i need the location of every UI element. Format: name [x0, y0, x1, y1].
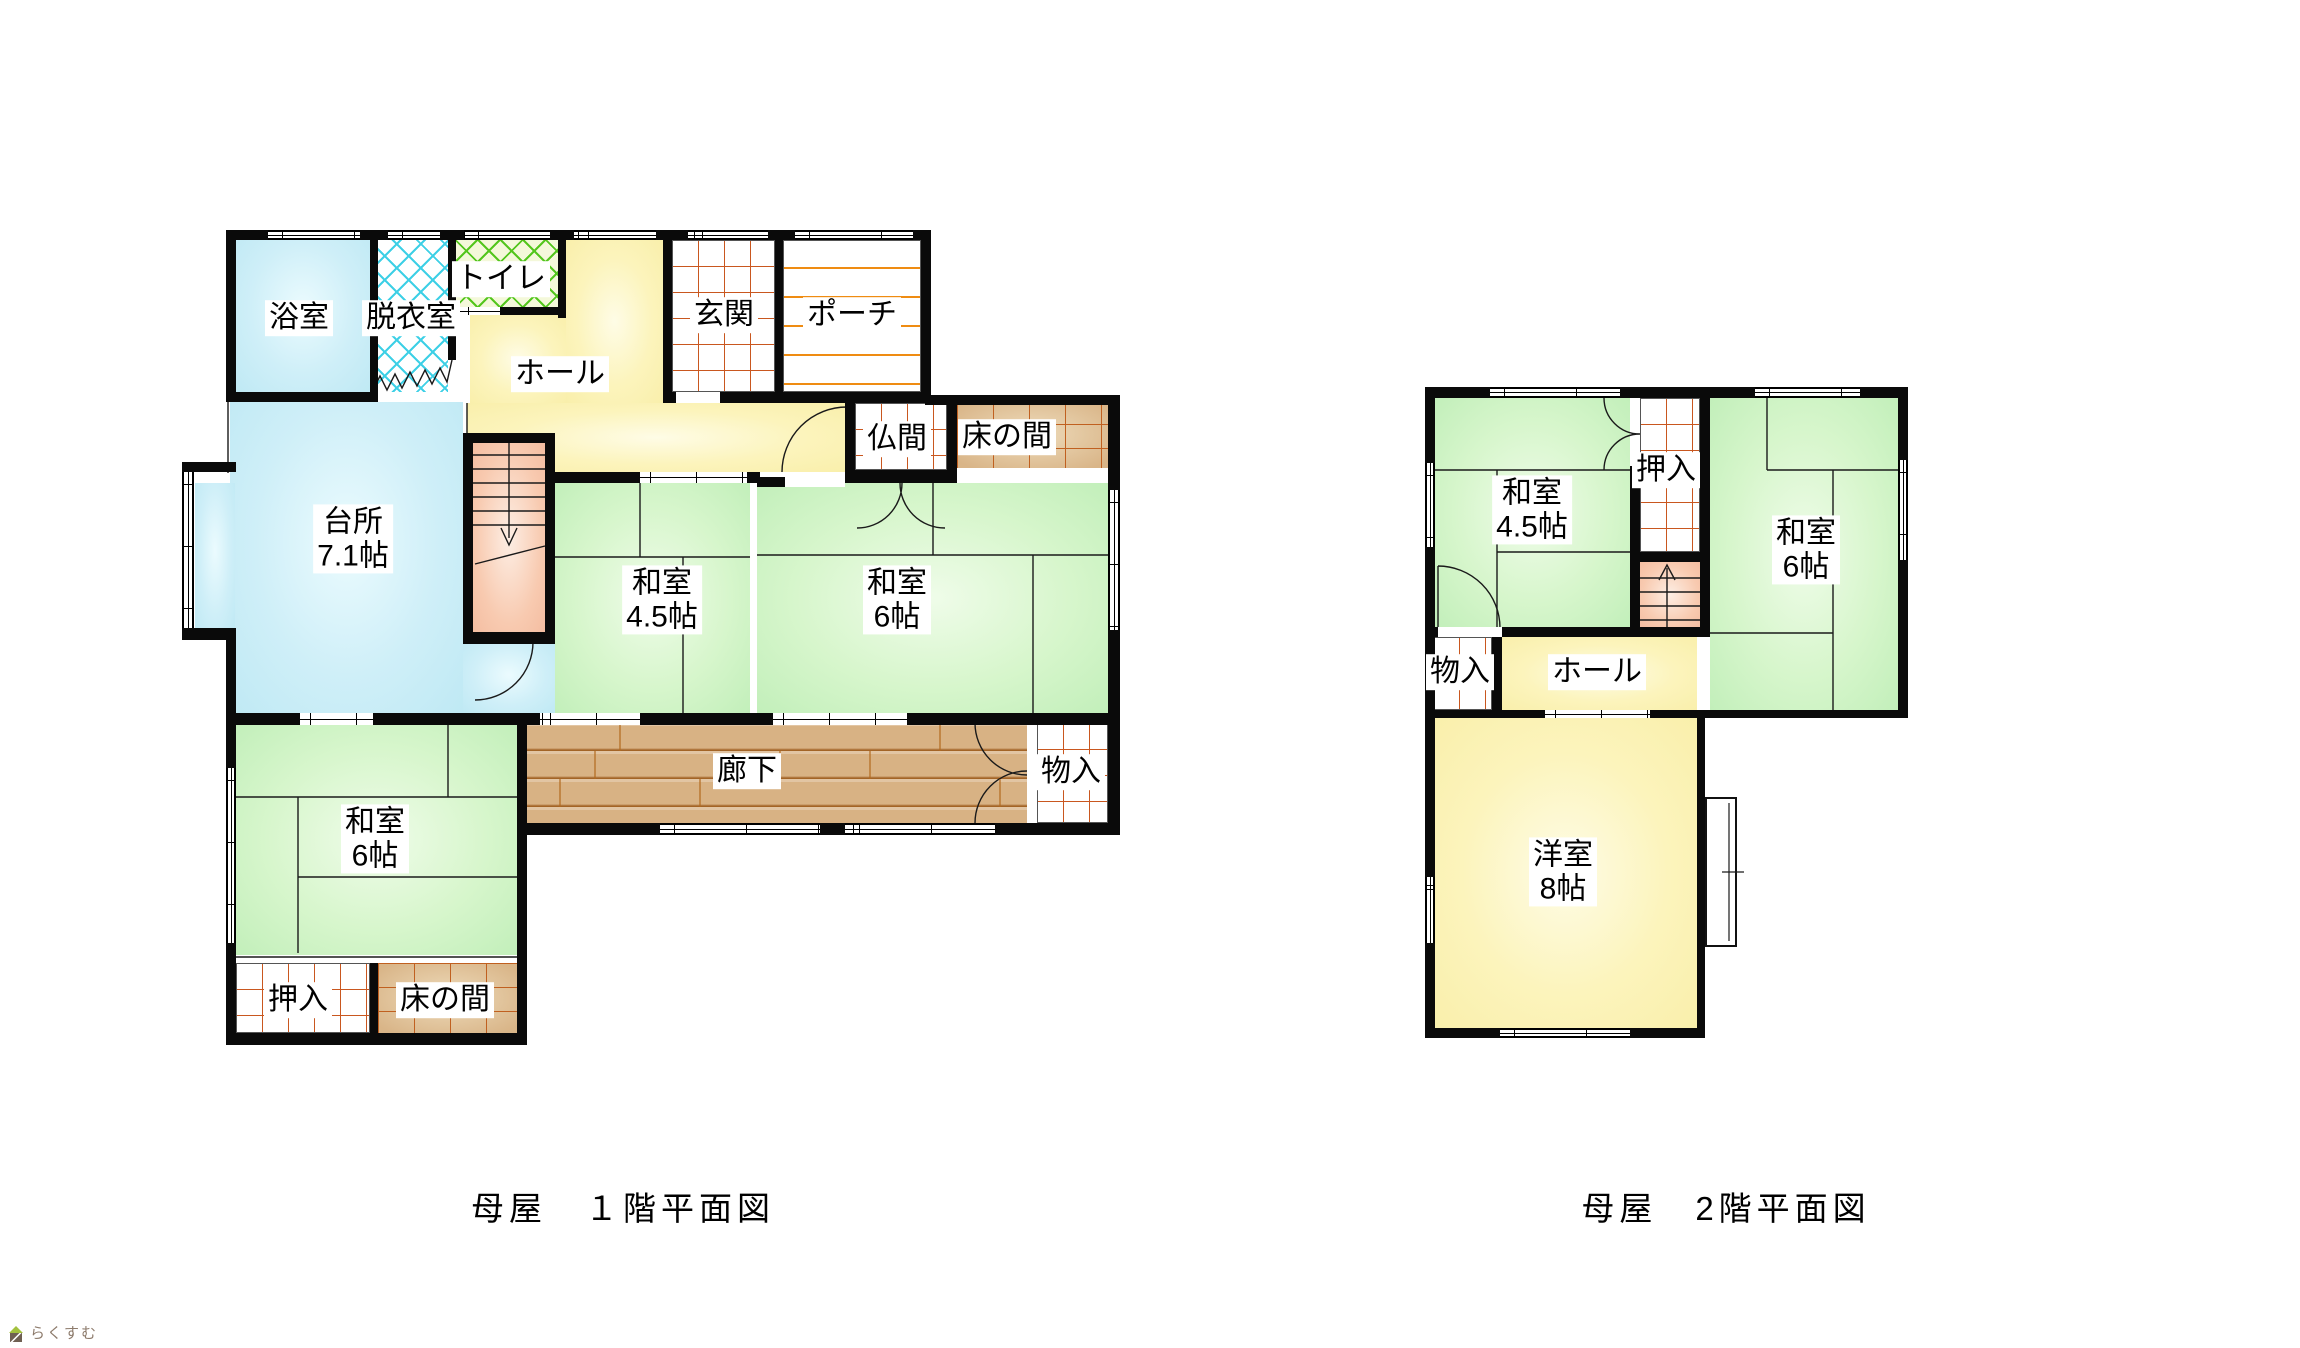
room-label-corridor: 廊下 [713, 753, 781, 789]
window [1755, 387, 1860, 398]
wall-bay-stub [182, 462, 236, 472]
wall [1697, 710, 1908, 718]
room-label-washitsu6-east: 和室6帖 [863, 565, 931, 634]
room-label-toilet: トイレ [452, 261, 550, 297]
wall [226, 640, 236, 713]
room-label-entrance: 玄関 [690, 297, 758, 333]
room-label-bath: 浴室 [265, 300, 333, 336]
accordion-zigzag [372, 360, 452, 392]
room-label-washitsu6-south: 和室6帖 [341, 804, 409, 873]
opening-fusuma [300, 713, 373, 725]
wall [463, 433, 473, 644]
opening-toilet-door [458, 307, 500, 315]
stairs-lines-1f [473, 443, 545, 564]
wall [370, 963, 378, 1033]
linework-overlay [0, 0, 2300, 1348]
window [1490, 387, 1620, 398]
window [688, 230, 768, 240]
window [1898, 460, 1908, 560]
opening-fusuma [640, 472, 747, 483]
window [1425, 463, 1435, 547]
window [388, 230, 440, 240]
house-icon [8, 1326, 25, 1343]
wall [921, 240, 931, 398]
door-gap-washitsu45-2f [1438, 627, 1502, 637]
window [1425, 877, 1435, 943]
window [795, 230, 913, 240]
door-gap-entrance [676, 392, 720, 403]
wall [463, 433, 555, 443]
room-label-butsuma: 仏間 [863, 421, 931, 457]
wall [775, 240, 783, 392]
wall [226, 240, 236, 392]
window [845, 823, 995, 835]
window [1500, 1028, 1630, 1038]
room-label-youshitsu-2f: 洋室8帖 [1529, 837, 1597, 906]
door-gap-hall-washitsu [785, 477, 845, 487]
wall [463, 632, 555, 644]
room-label-tokonoma-upper: 床の間 [958, 419, 1056, 455]
wall [663, 240, 672, 403]
window [226, 768, 236, 943]
room-label-tokonoma-lower: 床の間 [396, 982, 494, 1018]
wall [1630, 552, 1710, 562]
room-label-porch: ポーチ [803, 297, 901, 333]
room-label-washitsu6-2f: 和室6帖 [1772, 515, 1840, 584]
window [660, 823, 820, 835]
wall [517, 713, 527, 1045]
room-label-storage-1f: 物入 [1037, 754, 1105, 790]
floorplan-page: 浴室 脱衣室 トイレ ホール 玄関 ポーチ 仏間 床の間 台所7.1帖 和室4.… [0, 0, 2300, 1348]
room-label-oshiire-1f: 押入 [264, 982, 332, 1018]
floor2-caption: 母屋 2階平面図 [1581, 1182, 1870, 1230]
room-label-washitsu45-2f: 和室4.5帖 [1492, 475, 1572, 544]
room-label-storage-2f: 物入 [1426, 654, 1494, 690]
window [574, 230, 656, 240]
wall [1700, 387, 1710, 637]
wall [757, 477, 785, 487]
wall [545, 433, 555, 644]
tatami-lines-1f [228, 402, 1108, 957]
window [268, 230, 360, 240]
wall [226, 392, 378, 402]
opening-fusuma [540, 713, 640, 725]
window-bay [182, 472, 194, 628]
room-label-hall-1f: ホール [511, 356, 609, 392]
window [1108, 490, 1120, 630]
wall [527, 823, 1120, 835]
wall [845, 470, 957, 483]
room-label-kitchen: 台所7.1帖 [313, 504, 393, 573]
room-label-washitsu45-1f: 和室4.5帖 [622, 565, 702, 634]
watermark-text: らくすむ [30, 1322, 98, 1343]
watermark: らくすむ [8, 1322, 98, 1343]
room-label-hall-2f: ホール [1548, 654, 1646, 690]
wall [226, 1033, 527, 1045]
wall-bay-stub [182, 628, 236, 640]
balcony-inner-line [1722, 803, 1744, 941]
room-label-oshiire-2f: 押入 [1632, 452, 1700, 488]
wall [1697, 710, 1705, 1038]
wall [558, 240, 566, 318]
opening-hall-youshitsu [1545, 710, 1650, 718]
floor1-caption: 母屋 １階平面図 [471, 1182, 775, 1230]
opening-fusuma [773, 713, 907, 725]
window [464, 230, 550, 240]
wall [555, 472, 640, 483]
room-label-dressing: 脱衣室 [362, 300, 460, 336]
